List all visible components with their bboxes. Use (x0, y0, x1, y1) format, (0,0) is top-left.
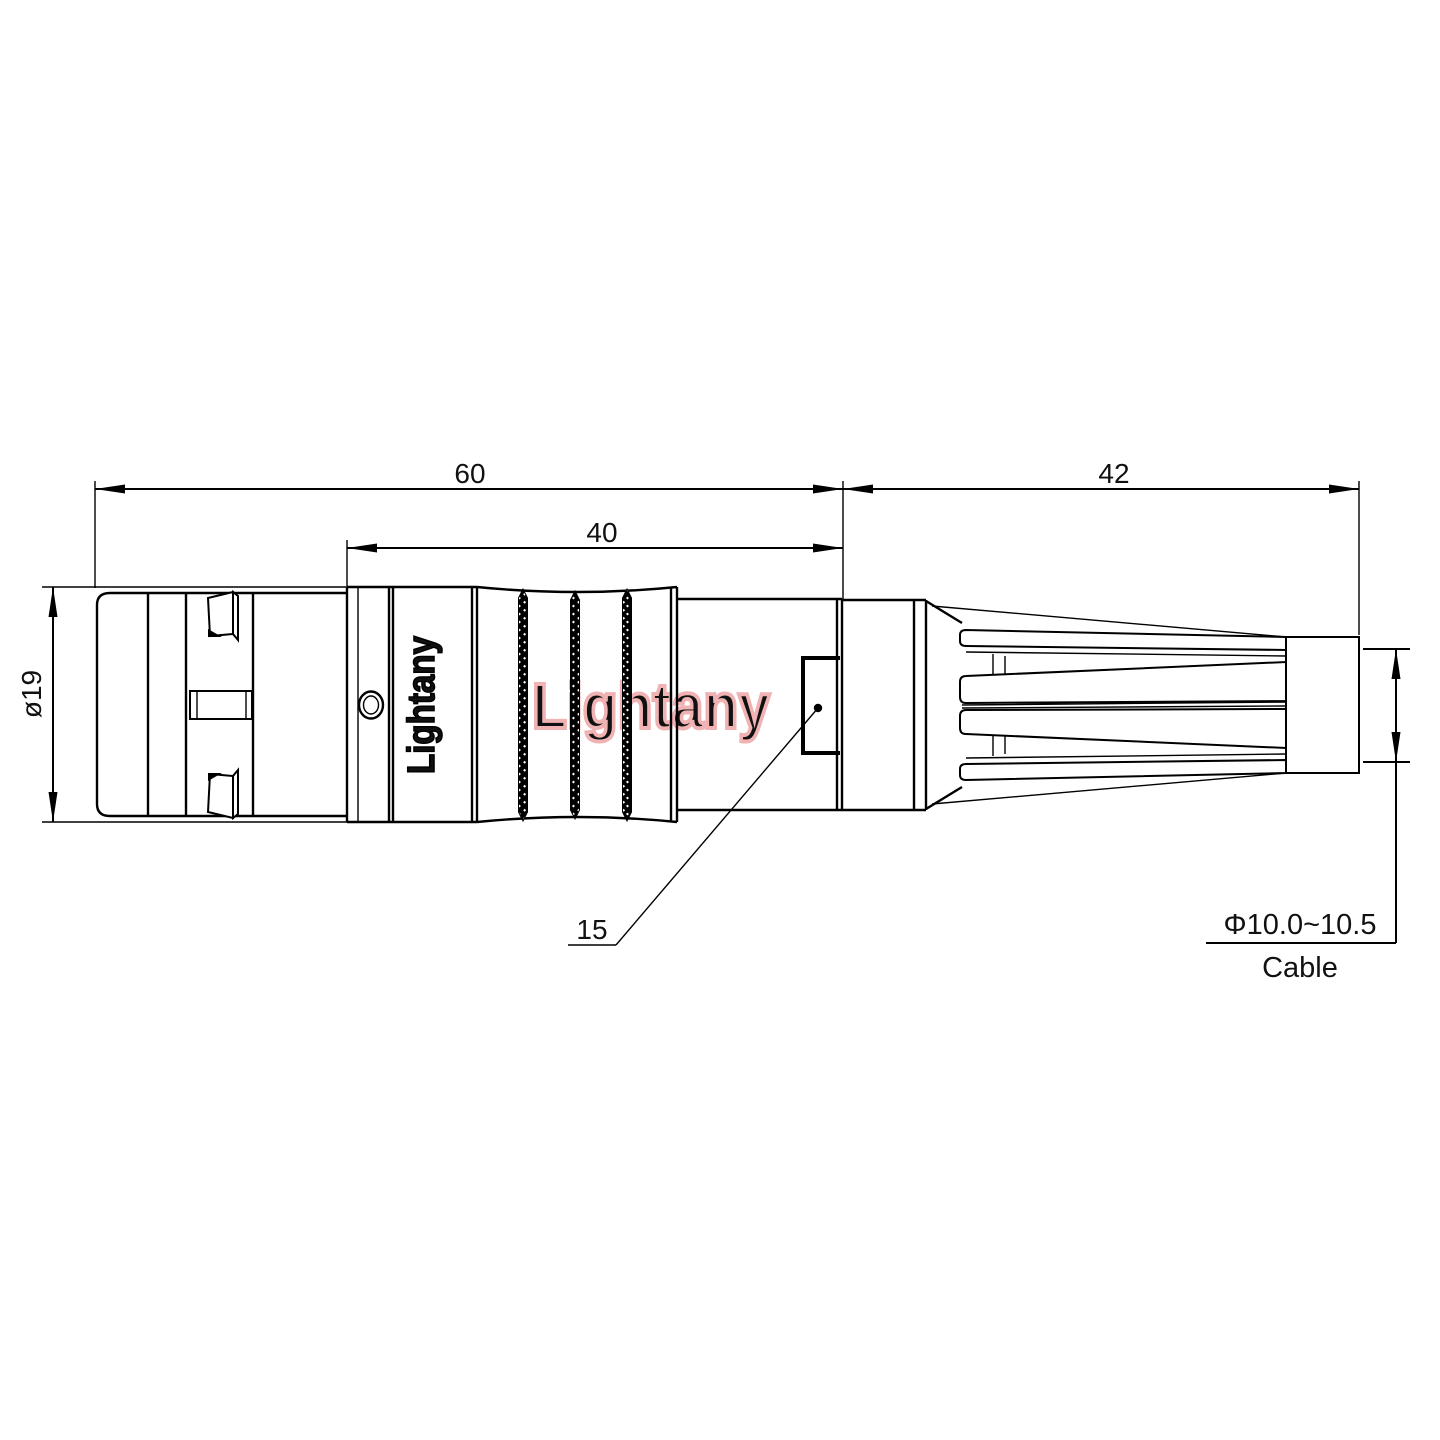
boot-slat-2 (960, 662, 1286, 703)
key-slot (190, 691, 252, 719)
coupling-nut (842, 600, 926, 810)
bayonet-key-top-face (208, 592, 233, 636)
leader15-value: 15 (576, 914, 607, 945)
dim60-arrow-left (95, 485, 125, 494)
vent-hole-inner (364, 696, 379, 714)
dim60-value: 60 (454, 458, 485, 489)
boot-top-slope (926, 601, 962, 623)
cable-end-cap (1286, 637, 1359, 773)
cable-arrow-up (1392, 649, 1401, 679)
knurl-band-3 (623, 589, 632, 821)
knurl-bottom-edge (477, 817, 677, 822)
collar-ring (347, 587, 393, 822)
dim40-arrow-left (347, 544, 377, 553)
key-slot-outline (190, 691, 252, 719)
knurl-band-1 (519, 589, 528, 821)
brand-ring: Lightany (393, 587, 477, 822)
dim40-arrow-right (813, 544, 843, 553)
leader-latch-reference: 15 (568, 708, 818, 945)
bayonet-key-top (208, 592, 238, 640)
boot-slot2-line (966, 754, 1286, 758)
boot-bottom-slope (926, 787, 962, 809)
bayonet-key-bottom-side (233, 770, 238, 818)
connector-technical-drawing: Lightany (0, 0, 1440, 1440)
dia19-arrow-top (49, 587, 58, 617)
cable-arrow-down (1392, 732, 1401, 762)
vent-hole (359, 692, 383, 719)
boot-center-seam-b (962, 706, 1286, 708)
leader15-line (616, 708, 818, 945)
boot-slat-3 (960, 709, 1286, 748)
dimension-boot-length: 42 (843, 458, 1359, 635)
knurl-band-2 (571, 591, 580, 819)
cable-word: Cable (1262, 952, 1338, 984)
brand-engraving: Lightany (401, 636, 443, 774)
brand-watermark: Lightany (532, 670, 770, 742)
dim40-value: 40 (586, 517, 617, 548)
boot-slot1-line (966, 652, 1286, 656)
dim42-arrow-right (1329, 485, 1359, 494)
front-sleeve (97, 592, 347, 818)
dim42-value: 42 (1098, 458, 1129, 489)
bayonet-key-bottom (208, 770, 238, 818)
dia19-value: ø19 (16, 670, 47, 718)
dim60-arrow-right (813, 485, 843, 494)
cable-diameter-value: Φ10.0~10.5 (1224, 909, 1377, 941)
bayonet-key-bottom-face (208, 774, 233, 818)
latch-window (803, 658, 840, 753)
dim42-arrow-left (843, 485, 873, 494)
bayonet-key-top-side (233, 592, 238, 640)
knurl-top-edge (477, 587, 677, 592)
dimension-overall-length: 60 (95, 458, 843, 599)
strain-relief-boot (926, 601, 1359, 809)
dia19-arrow-bottom (49, 792, 58, 822)
technical-drawing-canvas: Lightany (0, 0, 1440, 1440)
dimension-shell-diameter: ø19 (16, 587, 350, 822)
dimension-rear-length: 40 (347, 517, 843, 586)
